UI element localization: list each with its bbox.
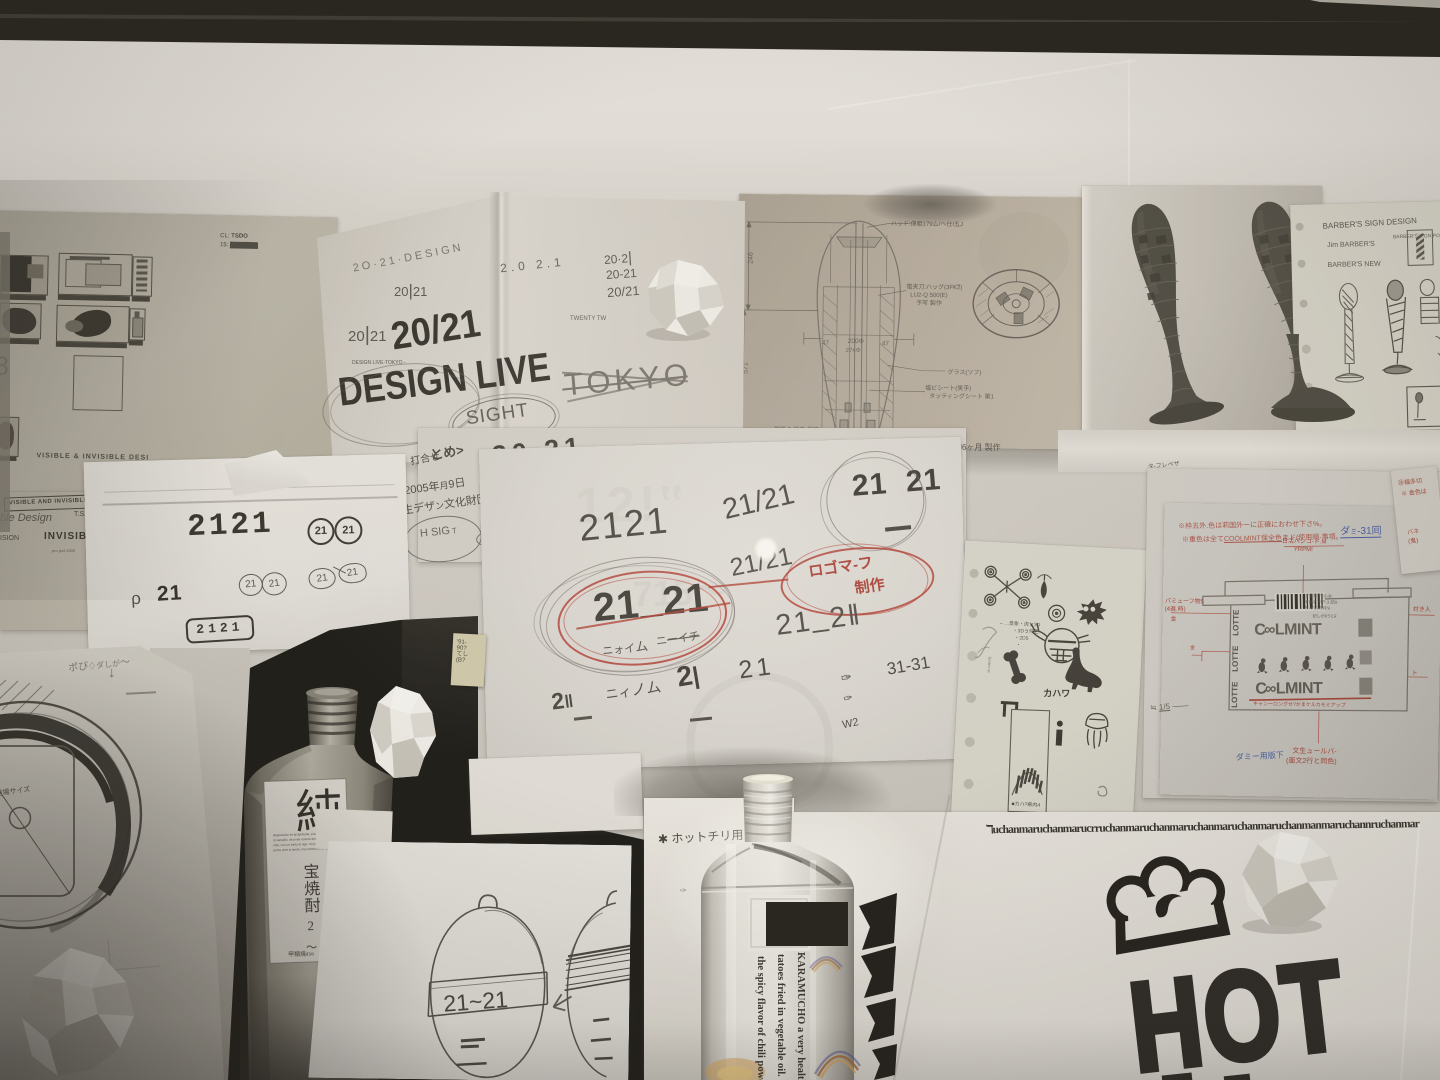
svg-text:ト: ト [1412, 671, 1418, 677]
svg-text:C∞LMINT: C∞LMINT [1254, 621, 1322, 639]
svg-text:焼: 焼 [304, 880, 321, 899]
svg-text:パミューフ物5: パミューフ物5 [1165, 597, 1205, 606]
svg-text:グセ薄ジCS-あ.: グセ薄ジCS-あ. [1305, 592, 1333, 598]
svg-text:宝: 宝 [303, 863, 320, 882]
svg-text:塩ビシート(笑手): 塩ビシート(笑手) [925, 384, 971, 392]
svg-text:ちえて2カ月'9: ちえて2カ月'9 [1305, 604, 1331, 610]
svg-text:電夹刀:ハッグ(3FKّ2): 電夹刀:ハッグ(3FKّ2) [906, 283, 962, 292]
svg-text:対き人: 対き人 [1413, 605, 1431, 613]
svg-text:金: 金 [1190, 644, 1195, 651]
svg-text:文生ュールバ-: 文生ュールバ- [1292, 746, 1337, 756]
svg-text:予写 製作: 予写 製作 [916, 299, 942, 307]
svg-text:■カハ?県内4: ■カハ?県内4 [1011, 800, 1040, 808]
svg-text:キャンーロングせ?かまケルカモミアップ: キャンーロングせ?かまケルカモミアップ [1253, 700, 1346, 709]
svg-text:・: ・ [1016, 642, 1021, 648]
svg-text:日活パシコ-ド.M: 日活パシコ-ド.M [1282, 537, 1327, 546]
svg-text:酎: 酎 [304, 897, 321, 916]
svg-text:記しが8ラ2ヌ: 記しが8ラ2ヌ [1313, 612, 1338, 618]
svg-text:(亜文2行と同色): (亜文2行と同色) [1286, 756, 1337, 766]
svg-text:LU2-Q 500(E): LU2-Q 500(E) [910, 293, 947, 299]
svg-text:カハワ: カハワ [1043, 689, 1070, 699]
svg-text:274Φ: 274Φ [846, 348, 861, 354]
svg-text:200Φ: 200Φ [848, 338, 864, 345]
svg-text:←…景象・虎セ3D: ←…景象・虎セ3D [999, 619, 1041, 628]
svg-text:47: 47 [822, 340, 830, 347]
svg-text:C∞LMINT: C∞LMINT [1255, 680, 1323, 698]
svg-text:ダミー用版下: ダミー用版下 [1236, 750, 1284, 762]
svg-text:(4進.時): (4進.時) [1165, 605, 1186, 613]
svg-text:LOTTE: LOTTE [1230, 681, 1239, 708]
svg-text:2: 2 [307, 918, 314, 933]
svg-text:せ記求 パラ.3 記B: せ記求 パラ.3 記B [1305, 598, 1338, 605]
svg-text:退場サイズ: 退場サイズ [0, 784, 31, 798]
svg-text:・2D5: ・2D5 [1014, 635, 1029, 642]
svg-text:47: 47 [882, 340, 890, 347]
svg-text:246: 246 [748, 252, 755, 264]
svg-text:LOTTE: LOTTE [1231, 609, 1240, 636]
svg-text:タッティングシート 第1: タッティングシート 第1 [929, 392, 994, 401]
svg-text:グラス(ソフ): グラス(ソフ) [947, 368, 981, 376]
svg-text:金: 金 [1170, 615, 1176, 623]
svg-text:YRPM!: YRPM! [1294, 547, 1313, 553]
svg-text:LOTTE: LOTTE [1231, 645, 1240, 672]
svg-text:21~21: 21~21 [442, 986, 508, 1017]
